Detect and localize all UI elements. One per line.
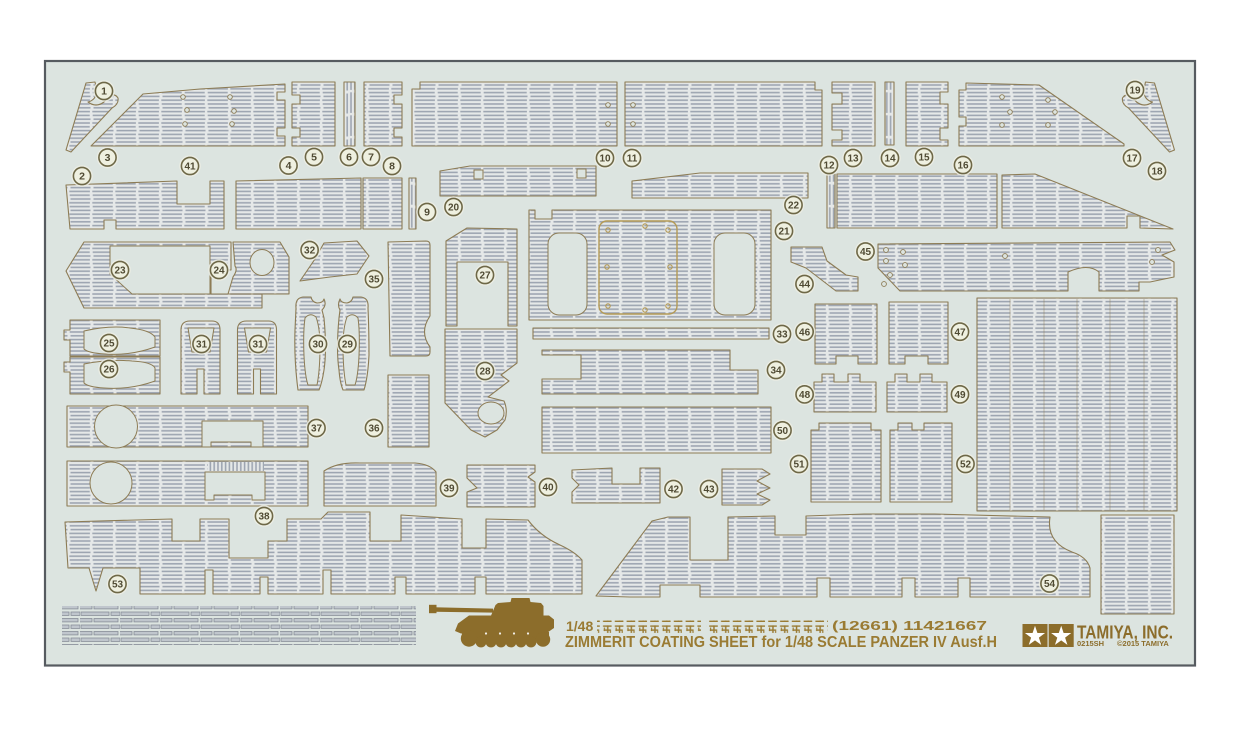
svg-text:42: 42 [668, 485, 680, 496]
svg-text:37: 37 [311, 424, 323, 435]
svg-text:29: 29 [342, 340, 354, 351]
svg-text:22: 22 [788, 201, 800, 212]
svg-text:46: 46 [799, 327, 811, 338]
svg-text:36: 36 [368, 424, 380, 435]
svg-text:©2015 TAMIYA: ©2015 TAMIYA [1117, 639, 1169, 648]
svg-text:35: 35 [368, 275, 380, 286]
svg-text:51: 51 [793, 460, 805, 471]
svg-text:3: 3 [105, 152, 111, 164]
svg-text:18: 18 [1151, 167, 1163, 178]
svg-text:49: 49 [954, 390, 966, 401]
svg-text:11: 11 [627, 154, 638, 165]
svg-text:12: 12 [823, 161, 835, 172]
svg-text:27: 27 [479, 271, 491, 282]
svg-text:2: 2 [79, 171, 85, 183]
svg-text:47: 47 [954, 327, 966, 338]
svg-text:23: 23 [114, 266, 126, 277]
svg-text:34: 34 [770, 366, 782, 377]
svg-text:4: 4 [286, 160, 292, 172]
svg-text:5: 5 [311, 152, 317, 164]
svg-text:9: 9 [424, 207, 430, 219]
svg-text:43: 43 [703, 485, 715, 496]
svg-text:26: 26 [103, 365, 115, 376]
svg-text:7: 7 [368, 152, 374, 164]
svg-text:52: 52 [960, 460, 972, 471]
svg-text:44: 44 [799, 280, 811, 291]
svg-text:31: 31 [252, 340, 264, 351]
svg-text:17: 17 [1126, 154, 1138, 165]
svg-text:16: 16 [957, 161, 969, 172]
svg-text:6: 6 [346, 152, 352, 164]
svg-text:19: 19 [1129, 86, 1141, 97]
svg-text:50: 50 [777, 426, 789, 437]
svg-text:54: 54 [1044, 579, 1056, 590]
svg-text:30: 30 [312, 340, 324, 351]
svg-text:13: 13 [847, 154, 859, 165]
svg-text:33: 33 [776, 330, 788, 341]
svg-text:(12661) 11421667: (12661) 11421667 [832, 618, 987, 633]
svg-text:32: 32 [304, 246, 316, 257]
svg-text:53: 53 [112, 580, 124, 591]
svg-text:8: 8 [389, 161, 395, 173]
svg-text:0215SH: 0215SH [1077, 639, 1104, 648]
svg-text:14: 14 [884, 154, 896, 165]
svg-text:15: 15 [918, 153, 930, 164]
svg-text:39: 39 [443, 484, 455, 495]
svg-text:48: 48 [799, 390, 811, 401]
svg-text:21: 21 [778, 227, 790, 238]
svg-text:20: 20 [448, 203, 460, 214]
svg-text:40: 40 [542, 483, 554, 494]
svg-text:38: 38 [258, 512, 270, 523]
svg-text:ZIMMERIT COATING SHEET for 1/4: ZIMMERIT COATING SHEET for 1/48 SCALE PA… [565, 634, 997, 651]
svg-text:1/48: 1/48 [566, 618, 593, 634]
svg-text:1: 1 [101, 86, 107, 98]
svg-text:10: 10 [599, 154, 611, 165]
svg-text:28: 28 [479, 367, 491, 378]
svg-text:41: 41 [184, 162, 196, 173]
svg-text:45: 45 [860, 247, 872, 258]
svg-text:25: 25 [103, 339, 115, 350]
svg-text:24: 24 [213, 266, 225, 277]
svg-text:31: 31 [196, 340, 208, 351]
